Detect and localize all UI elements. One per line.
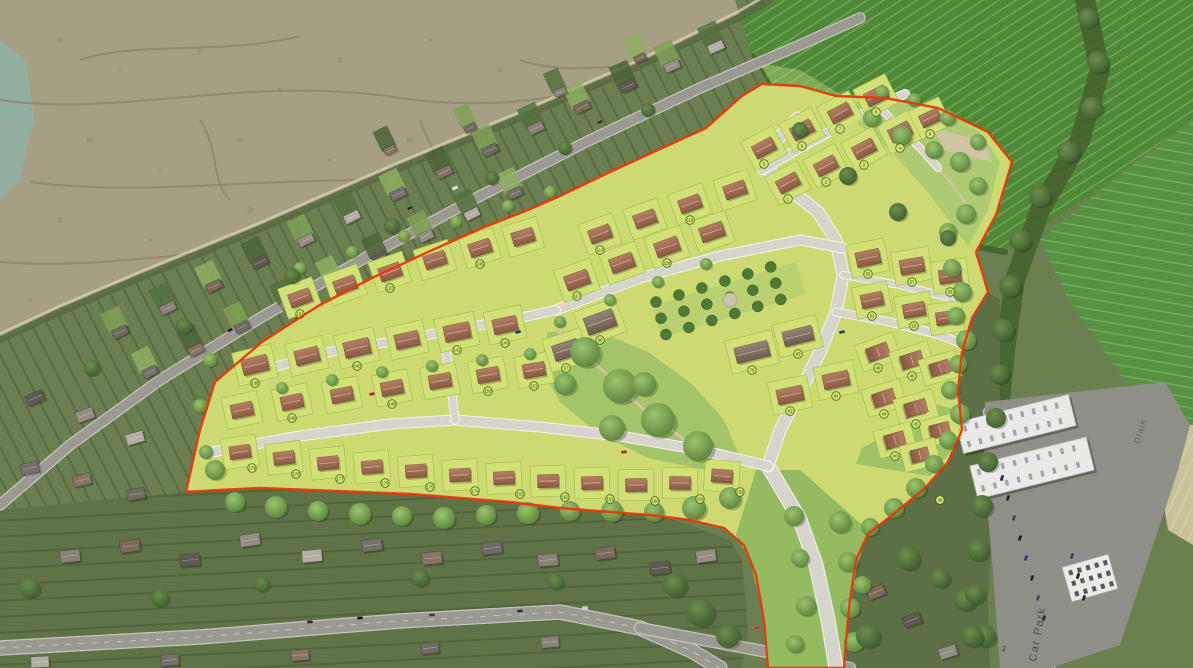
marker-number: 146	[288, 416, 296, 421]
tree	[476, 505, 496, 525]
tree	[426, 360, 438, 372]
existing-house	[594, 545, 617, 562]
tree	[978, 452, 998, 472]
tree	[502, 200, 514, 212]
car-body	[307, 620, 313, 623]
existing-house	[161, 654, 181, 668]
car-body	[357, 616, 363, 619]
plot-number-marker: 38	[936, 496, 945, 505]
tree	[943, 259, 961, 277]
tree	[1081, 97, 1103, 119]
house-number-label: 2	[1002, 646, 1006, 653]
existing-house	[695, 548, 718, 565]
plot-number-marker: 176	[381, 479, 390, 488]
plot-number-marker: 114	[596, 246, 605, 255]
proposed-house	[486, 462, 523, 495]
marker-number: 161	[606, 497, 614, 502]
marker-number: 142	[453, 348, 461, 353]
marker-number: 119	[664, 261, 671, 266]
marker-number: 158	[736, 490, 744, 495]
orchard-tree	[683, 322, 694, 333]
marker-number: 150	[484, 389, 492, 394]
plot-number-marker: 97	[562, 364, 571, 373]
plot-number-marker: 162	[561, 493, 570, 502]
tree	[176, 318, 192, 334]
existing-house	[291, 649, 311, 663]
orchard-tree	[706, 315, 717, 326]
marker-number: 174	[471, 489, 479, 494]
marker-number: 80	[796, 352, 801, 357]
orchard-tree	[770, 278, 781, 289]
plot-number-marker: 49	[908, 372, 917, 381]
marker-number: 40	[893, 454, 898, 459]
tree	[716, 624, 740, 648]
existing-house	[301, 549, 324, 565]
orchard-tree	[747, 285, 758, 296]
tree	[199, 445, 213, 459]
mud-patch	[148, 238, 152, 242]
marker-number: 52	[870, 314, 875, 319]
plot-number-marker: 179	[248, 464, 257, 473]
plot-number-marker: 143	[501, 339, 510, 348]
tree	[950, 152, 970, 172]
car-body	[621, 450, 627, 453]
plot-number-marker: 3	[860, 161, 869, 170]
plot-number-marker: 58	[946, 288, 955, 297]
tree	[896, 546, 920, 570]
car	[429, 613, 435, 616]
plot-number-marker: 78	[748, 366, 757, 375]
marker-number: 148	[388, 402, 396, 407]
plot-number-marker: 45	[912, 420, 921, 429]
tree	[686, 598, 714, 626]
plot-number-marker: 9	[926, 130, 935, 139]
plot-number-marker: 148	[388, 400, 397, 409]
plot-number-marker: 52	[868, 312, 877, 321]
tree	[986, 408, 1006, 428]
plot-number-marker: 140	[353, 362, 362, 371]
mud-patch	[118, 68, 122, 72]
plot-number-marker: 161	[606, 495, 615, 504]
tree	[652, 276, 664, 288]
plot-number-marker: 135	[476, 260, 485, 269]
plot-number-marker: 116	[686, 216, 695, 225]
tree	[952, 282, 972, 302]
existing-house	[31, 656, 51, 668]
tree	[641, 403, 675, 437]
plot-number-marker: 53	[910, 322, 919, 331]
plot-number-marker: 6	[798, 142, 807, 151]
tree	[411, 569, 429, 587]
tree	[84, 360, 100, 376]
plot-number-marker: 146	[288, 414, 297, 423]
tree	[786, 635, 804, 653]
tree	[940, 230, 956, 246]
car	[517, 609, 523, 612]
tree	[548, 574, 564, 590]
tree	[999, 275, 1021, 297]
aerial-masterplan-view: 1791781771761751741631621611601591581311…	[0, 0, 1193, 668]
plot-number-marker: 4	[896, 144, 905, 153]
mud-patch	[247, 207, 253, 213]
marker-number: 117	[574, 294, 581, 299]
car	[582, 606, 588, 609]
car-body	[429, 613, 435, 616]
tree	[992, 319, 1014, 341]
marker-number: 49	[910, 374, 915, 379]
tree	[485, 171, 499, 185]
marker-number: 84	[834, 394, 839, 399]
plot-number-marker: 80	[794, 350, 803, 359]
existing-house	[59, 549, 82, 565]
marker-number: 143	[501, 341, 509, 346]
tree	[829, 511, 851, 533]
tree	[392, 506, 412, 526]
tree	[1009, 229, 1031, 251]
tree	[967, 539, 989, 561]
plot-number-marker: 48	[874, 364, 883, 373]
tree	[346, 246, 358, 258]
tree	[971, 495, 993, 517]
tree	[949, 355, 967, 373]
mud-patch	[278, 88, 282, 92]
proposed-house	[574, 467, 610, 499]
tree	[947, 307, 965, 325]
orchard-tree	[678, 306, 689, 317]
tree	[326, 374, 338, 386]
marker-number: 53	[912, 324, 917, 329]
car	[621, 450, 627, 453]
tree	[225, 492, 245, 512]
tree	[853, 576, 871, 594]
marker-number: 116	[687, 218, 694, 223]
plot-number-marker: 40	[891, 452, 900, 461]
existing-house	[541, 636, 562, 651]
marker-number: 44	[882, 412, 887, 417]
plot-number-marker: 160	[651, 497, 660, 506]
tree	[1078, 8, 1098, 28]
orchard-tree	[651, 297, 662, 308]
tree	[349, 503, 371, 525]
orchard-tree	[719, 275, 730, 286]
plot-number-marker: 178	[292, 470, 301, 479]
tree	[376, 366, 388, 378]
tree	[989, 364, 1009, 384]
mud-patch	[87, 137, 93, 143]
marker-number: 114	[597, 248, 604, 253]
plot-number-marker: 175	[426, 483, 435, 492]
marker-number: 97	[564, 366, 569, 371]
plot-number-marker: 159	[696, 495, 705, 504]
tree	[450, 216, 462, 228]
plot-number-marker: 82	[786, 407, 795, 416]
tree	[203, 353, 217, 367]
marker-number: 82	[788, 409, 793, 414]
marker-number: 133	[386, 286, 394, 291]
mud-patch	[407, 137, 413, 143]
tree	[544, 186, 556, 198]
orchard-tree	[775, 294, 786, 305]
marker-number: 48	[876, 366, 881, 371]
existing-house	[422, 551, 445, 567]
proposed-house	[703, 459, 740, 492]
plot-number-marker: 150	[484, 387, 493, 396]
orchard-tree	[655, 313, 666, 324]
plot-number-marker: 56	[864, 270, 873, 279]
plot-number-marker: 133	[386, 284, 395, 293]
tree	[603, 369, 637, 403]
plot-number-marker: 158	[736, 488, 745, 497]
plot-number-marker: 117	[573, 292, 582, 301]
existing-house	[119, 538, 142, 555]
orchard-feature	[723, 293, 737, 307]
tree	[560, 501, 580, 521]
tree	[641, 103, 655, 117]
marker-number: 56	[866, 272, 871, 277]
tree	[20, 578, 40, 598]
plot-number-marker: 1	[784, 195, 793, 204]
tree	[956, 204, 976, 224]
tree	[889, 203, 907, 221]
tree	[930, 568, 950, 588]
tree	[791, 549, 809, 567]
tree	[941, 381, 959, 399]
marker-number: 58	[948, 290, 953, 295]
tree	[792, 122, 808, 138]
tree	[969, 177, 987, 195]
orchard-tree	[765, 261, 776, 272]
plot-number-marker: 142	[453, 346, 462, 355]
marker-number: 176	[381, 481, 389, 486]
orchard-tree	[752, 301, 763, 312]
proposed-house	[662, 467, 698, 499]
mud-patch	[57, 217, 63, 223]
mud-patch	[497, 67, 503, 73]
tree	[1087, 51, 1109, 73]
tree	[892, 126, 912, 146]
existing-house	[538, 553, 561, 569]
scene-svg: 1791781771761751741631621611601591581311…	[0, 0, 1193, 668]
tree	[433, 507, 455, 529]
tree	[476, 354, 488, 366]
car-body	[582, 606, 588, 609]
car	[307, 620, 313, 623]
tree	[254, 576, 270, 592]
marker-number: 151	[530, 384, 538, 389]
existing-house	[649, 561, 672, 577]
car	[357, 616, 363, 619]
existing-house	[421, 642, 442, 657]
tree	[599, 415, 625, 441]
orchard-tree	[729, 308, 740, 319]
proposed-house	[419, 362, 460, 400]
plot-number-marker: 8	[872, 108, 881, 117]
tree	[524, 348, 536, 360]
tree	[205, 460, 225, 480]
marker-number: 78	[750, 368, 755, 373]
marker-number: 178	[292, 472, 300, 477]
proposed-house	[618, 469, 654, 501]
marker-number: 175	[426, 485, 434, 490]
tree	[276, 382, 288, 394]
orchard-tree	[742, 268, 753, 279]
plot-number-marker: 151	[530, 382, 539, 391]
tree	[925, 141, 943, 159]
marker-number: 45	[914, 422, 919, 427]
existing-house	[180, 553, 203, 569]
plot-number-marker: 98	[596, 336, 605, 345]
tree	[570, 337, 600, 367]
mud-patch	[337, 57, 343, 63]
tree	[554, 373, 576, 395]
plot-number-marker: 174	[471, 487, 480, 496]
marker-number: 159	[696, 497, 704, 502]
plot-number-marker: 5	[760, 160, 769, 169]
existing-house	[481, 541, 504, 558]
tree	[265, 496, 287, 518]
tree	[558, 141, 572, 155]
marker-number: 98	[598, 338, 603, 343]
plot-number-marker: 84	[832, 392, 841, 401]
tree	[604, 294, 616, 306]
tree	[663, 573, 687, 597]
mud-patch	[158, 168, 162, 172]
marker-number: 57	[910, 280, 915, 285]
orchard-tree	[696, 282, 707, 293]
mud-patch	[28, 298, 32, 302]
plot-number-marker: 138	[251, 379, 260, 388]
plot-number-marker: 2	[822, 178, 831, 187]
marker-number: 160	[651, 499, 659, 504]
marker-number: 140	[353, 364, 361, 369]
mud-patch	[57, 37, 63, 43]
car-body	[517, 609, 523, 612]
tree	[554, 316, 566, 328]
tree	[796, 596, 816, 616]
orchard-tree	[701, 299, 712, 310]
existing-house	[361, 537, 384, 554]
plot-number-marker: 163	[516, 490, 525, 499]
marker-number: 177	[336, 477, 344, 482]
tree	[965, 584, 985, 604]
proposed-house	[442, 459, 479, 492]
proposed-house	[530, 465, 566, 497]
mud-patch	[328, 158, 332, 162]
tree	[1057, 141, 1079, 163]
tree	[284, 268, 300, 284]
mud-patch	[428, 38, 432, 42]
tree	[384, 218, 400, 234]
marker-number: 38	[938, 498, 943, 503]
tree	[961, 625, 983, 647]
plot-number-marker: 177	[336, 475, 345, 484]
marker-number: 163	[516, 492, 524, 497]
tree	[970, 134, 986, 150]
plot-number-marker: 7	[836, 125, 845, 134]
plot-number-marker: 57	[908, 278, 917, 287]
plot-number-marker: 44	[880, 410, 889, 419]
tree	[151, 589, 169, 607]
tree	[700, 258, 712, 270]
tree	[839, 167, 857, 185]
tree	[632, 372, 656, 396]
marker-number: 138	[251, 381, 259, 386]
mud-patch	[237, 137, 243, 143]
marker-number: 162	[561, 495, 569, 500]
plot-number-marker: 119	[663, 259, 672, 268]
tree	[1029, 185, 1051, 207]
orchard-tree	[660, 329, 671, 340]
mud-patch	[197, 47, 203, 53]
marker-number: 179	[248, 466, 256, 471]
marker-number: 135	[476, 262, 484, 267]
tree	[683, 431, 713, 461]
tree	[784, 506, 804, 526]
orchard-tree	[673, 289, 684, 300]
tree	[856, 624, 880, 648]
tree	[308, 501, 328, 521]
